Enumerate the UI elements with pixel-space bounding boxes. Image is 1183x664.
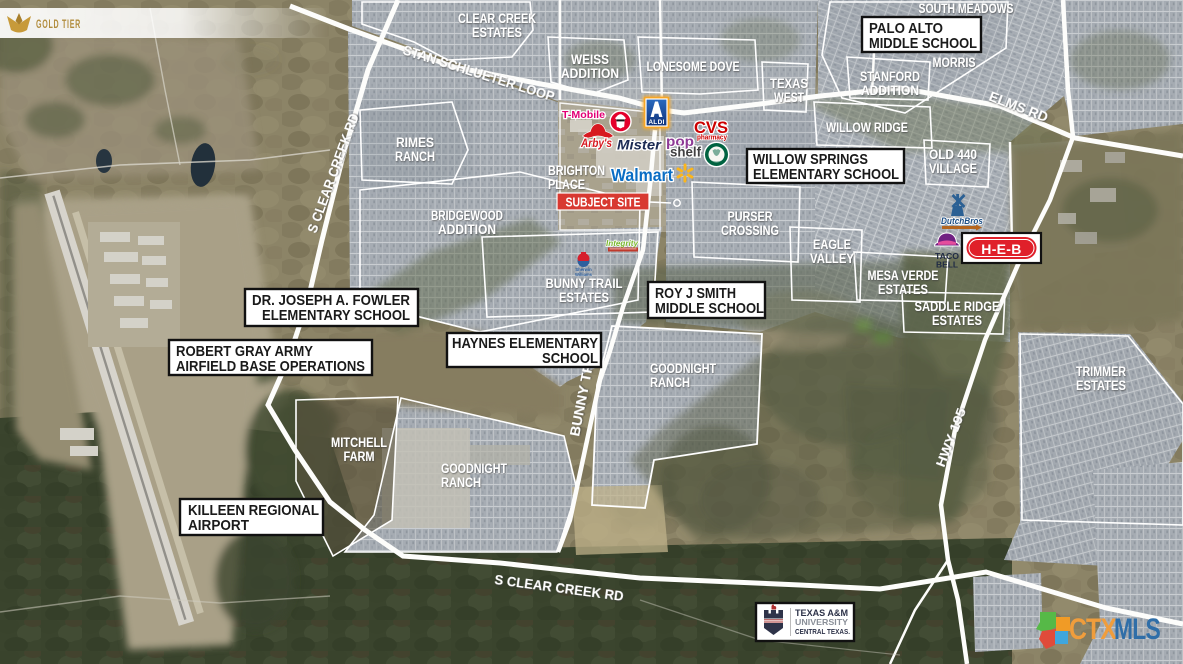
svg-text:CENTRAL TEXAS.: CENTRAL TEXAS.: [795, 627, 850, 636]
svg-text:ESTATES: ESTATES: [878, 282, 928, 297]
svg-text:RANCH: RANCH: [441, 475, 481, 490]
svg-text:H-E-B: H-E-B: [981, 241, 1021, 257]
svg-text:ESTATES: ESTATES: [559, 290, 609, 305]
svg-text:BRIGHTON: BRIGHTON: [548, 163, 605, 178]
svg-text:WEST: WEST: [774, 90, 805, 105]
svg-text:WILLOW RIDGE: WILLOW RIDGE: [826, 120, 908, 135]
svg-text:Integrity: Integrity: [606, 239, 639, 248]
svg-text:Williams: Williams: [575, 272, 593, 277]
svg-text:BELL: BELL: [936, 261, 958, 270]
svg-text:TRIMMER: TRIMMER: [1076, 364, 1126, 379]
svg-text:MIDDLE SCHOOL: MIDDLE SCHOOL: [655, 300, 764, 317]
svg-text:MORRIS: MORRIS: [933, 55, 976, 70]
svg-text:shelf: shelf: [670, 145, 701, 160]
svg-text:PLACE: PLACE: [548, 177, 585, 192]
svg-text:FARM: FARM: [344, 449, 375, 464]
svg-text:EAGLE: EAGLE: [813, 237, 851, 252]
svg-text:SADDLE RIDGE: SADDLE RIDGE: [915, 299, 1000, 314]
svg-text:STANFORD: STANFORD: [860, 69, 920, 84]
svg-text:ELEMENTARY SCHOOL: ELEMENTARY SCHOOL: [262, 307, 410, 324]
svg-text:ADDITION: ADDITION: [438, 222, 496, 237]
svg-text:WEISS: WEISS: [571, 52, 609, 67]
svg-text:GOLD TIER: GOLD TIER: [36, 17, 81, 31]
svg-text:GOODNIGHT: GOODNIGHT: [650, 361, 717, 376]
svg-text:ESTATES: ESTATES: [1076, 378, 1126, 393]
svg-text:SCHOOL: SCHOOL: [542, 350, 598, 367]
svg-text:VILLAGE: VILLAGE: [929, 161, 977, 176]
svg-text:SOUTH MEADOWS: SOUTH MEADOWS: [919, 1, 1014, 16]
svg-text:CLEAR CREEK: CLEAR CREEK: [458, 11, 536, 26]
svg-text:MIDDLE SCHOOL: MIDDLE SCHOOL: [869, 35, 977, 52]
svg-text:AIRFIELD BASE OPERATIONS: AIRFIELD BASE OPERATIONS: [176, 358, 365, 375]
svg-text:ESTATES: ESTATES: [932, 313, 982, 328]
svg-text:SUBJECT SITE: SUBJECT SITE: [566, 195, 641, 210]
svg-text:UNIVERSITY: UNIVERSITY: [795, 617, 848, 627]
svg-text:Mister: Mister: [617, 137, 663, 153]
svg-text:LONESOME DOVE: LONESOME DOVE: [647, 59, 740, 74]
svg-text:AIRPORT: AIRPORT: [188, 517, 249, 534]
svg-text:CTX: CTX: [1069, 613, 1117, 646]
svg-text:Arby's: Arby's: [580, 138, 612, 150]
svg-text:MLS: MLS: [1114, 613, 1160, 646]
svg-text:GOODNIGHT: GOODNIGHT: [441, 461, 508, 476]
svg-text:Walmart: Walmart: [611, 165, 673, 185]
svg-text:RANCH: RANCH: [650, 375, 690, 390]
svg-text:ADDITION: ADDITION: [861, 83, 919, 98]
svg-text:PURSER: PURSER: [728, 209, 773, 224]
svg-text:CROSSING: CROSSING: [721, 223, 779, 238]
svg-text:BUNNY TRAIL: BUNNY TRAIL: [546, 276, 623, 291]
svg-text:MESA VERDE: MESA VERDE: [868, 268, 939, 283]
svg-text:ESTATES: ESTATES: [472, 25, 522, 40]
svg-text:RIMES: RIMES: [396, 135, 434, 150]
svg-text:RANCH: RANCH: [395, 149, 435, 164]
svg-text:MITCHELL: MITCHELL: [331, 435, 387, 450]
svg-text:OLD 440: OLD 440: [929, 147, 977, 162]
svg-text:ADDITION: ADDITION: [561, 66, 619, 81]
svg-text:VALLEY: VALLEY: [810, 251, 854, 266]
svg-text:ALDI: ALDI: [648, 119, 664, 126]
svg-text:BRIDGEWOOD: BRIDGEWOOD: [431, 208, 503, 223]
svg-text:T-Mobile: T-Mobile: [562, 109, 605, 121]
svg-text:pharmacy: pharmacy: [697, 135, 727, 142]
svg-text:ELEMENTARY SCHOOL: ELEMENTARY SCHOOL: [753, 166, 899, 183]
svg-text:TEXAS: TEXAS: [770, 76, 808, 91]
